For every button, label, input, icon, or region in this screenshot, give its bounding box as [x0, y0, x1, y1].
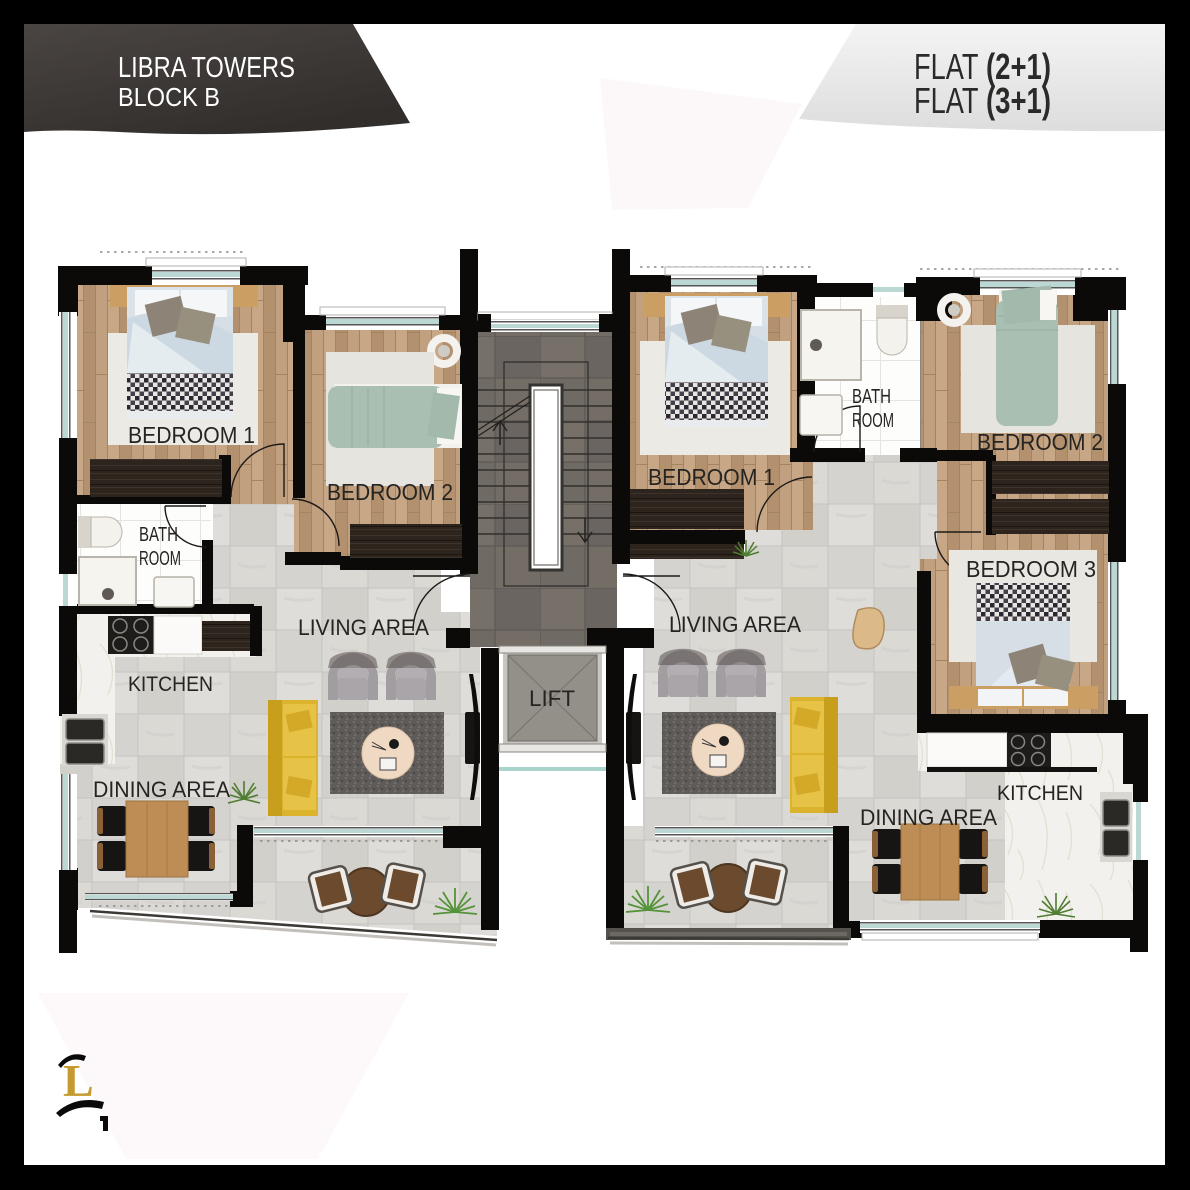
svg-text:BEDROOM 3: BEDROOM 3: [966, 556, 1096, 582]
svg-text:DINING AREA: DINING AREA: [860, 805, 997, 830]
svg-text:DINING AREA: DINING AREA: [93, 777, 230, 802]
svg-text:LIBRA TOWERS: LIBRA TOWERS: [118, 52, 295, 84]
svg-text:L: L: [63, 1055, 94, 1106]
svg-text:KITCHEN: KITCHEN: [997, 782, 1083, 805]
svg-text:LIFT: LIFT: [529, 686, 575, 711]
svg-text:LIVING AREA: LIVING AREA: [298, 615, 429, 640]
svg-text:BLOCK B: BLOCK B: [118, 82, 220, 112]
svg-text:BEDROOM 1: BEDROOM 1: [128, 422, 255, 448]
svg-text:FLAT (3+1): FLAT (3+1): [914, 80, 1051, 121]
svg-text:LIVING AREA: LIVING AREA: [669, 612, 801, 637]
svg-text:BEDROOM 1: BEDROOM 1: [648, 464, 775, 490]
svg-text:ROOM: ROOM: [139, 548, 181, 570]
svg-text:BATH: BATH: [139, 524, 178, 546]
svg-text:BEDROOM 2: BEDROOM 2: [327, 479, 453, 505]
svg-text:KITCHEN: KITCHEN: [128, 673, 213, 696]
svg-text:BATH: BATH: [852, 386, 891, 408]
svg-text:ROOM: ROOM: [852, 410, 894, 432]
svg-text:BEDROOM 2: BEDROOM 2: [977, 429, 1103, 455]
